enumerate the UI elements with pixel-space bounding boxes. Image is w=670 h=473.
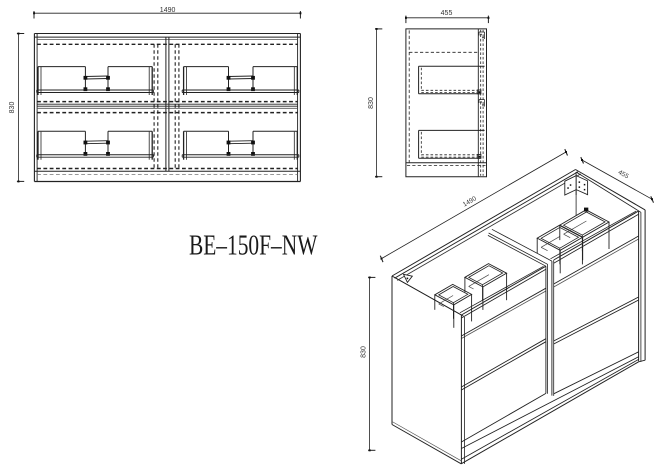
svg-text:830: 830 <box>9 102 16 114</box>
svg-text:830: 830 <box>360 346 367 358</box>
svg-text:1490: 1490 <box>160 7 176 14</box>
svg-text:455: 455 <box>441 10 453 17</box>
svg-text:BE–150F–NW: BE–150F–NW <box>189 229 318 261</box>
svg-text:830: 830 <box>368 97 375 109</box>
